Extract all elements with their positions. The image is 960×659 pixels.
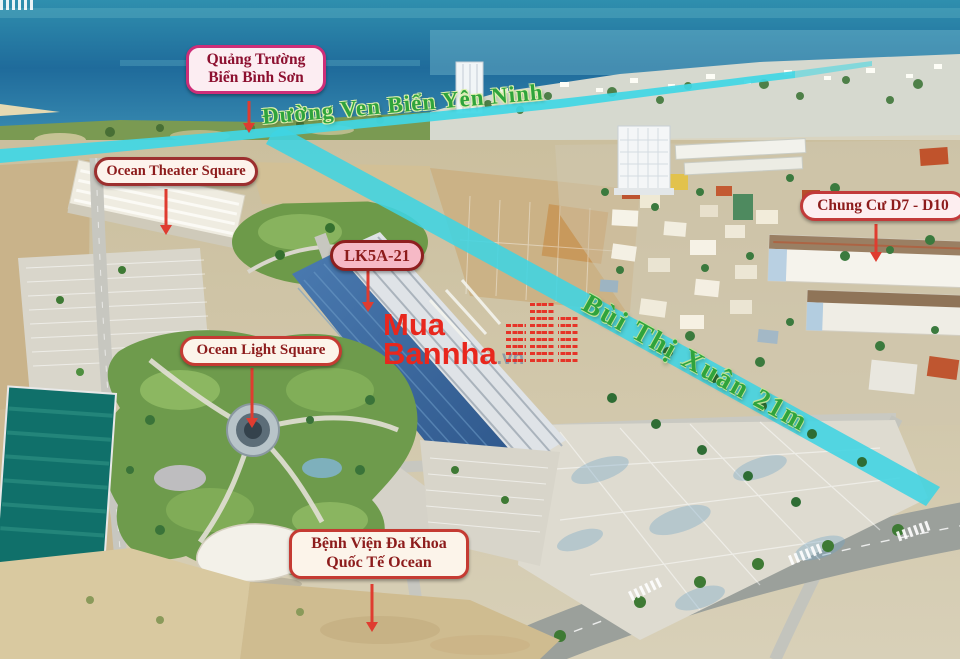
callout-lk5a-21: LK5A-21	[330, 240, 424, 271]
watermark-word-2: Bannha	[383, 336, 497, 371]
callout-text: Ocean Light Square	[189, 342, 333, 360]
callout-ocean-theater-square: Ocean Theater Square	[94, 157, 258, 186]
callout-quang-truong-bien-binh-son: Quảng Trường Biển Bình Sơn	[186, 45, 326, 94]
callout-text: Quốc Tế Ocean	[298, 554, 460, 573]
callout-text: Bệnh Viện Đa Khoa	[298, 535, 460, 554]
watermark-buildings-logo	[506, 296, 582, 364]
sports-field	[0, 386, 116, 571]
callout-chung-cu-d7-d10: Chung Cư D7 - D10	[800, 191, 960, 221]
white-tower	[614, 126, 674, 195]
callout-text: Quảng Trường	[195, 51, 317, 69]
callout-text: Biển Bình Sơn	[195, 69, 317, 87]
callout-text: LK5A-21	[339, 246, 415, 265]
watermark: Mua Bannha.vn	[383, 311, 524, 368]
callout-benh-vien-da-khoa-quoc-te-ocean: Bệnh Viện Đa Khoa Quốc Tế Ocean	[289, 529, 469, 579]
callout-text: Chung Cư D7 - D10	[809, 197, 957, 215]
callout-text: Ocean Theater Square	[103, 163, 249, 180]
annotated-aerial-photo: Đường Ven Biển Yên Ninh Bùi Thị Xuân 21m…	[0, 0, 960, 659]
callout-ocean-light-square: Ocean Light Square	[180, 336, 342, 366]
